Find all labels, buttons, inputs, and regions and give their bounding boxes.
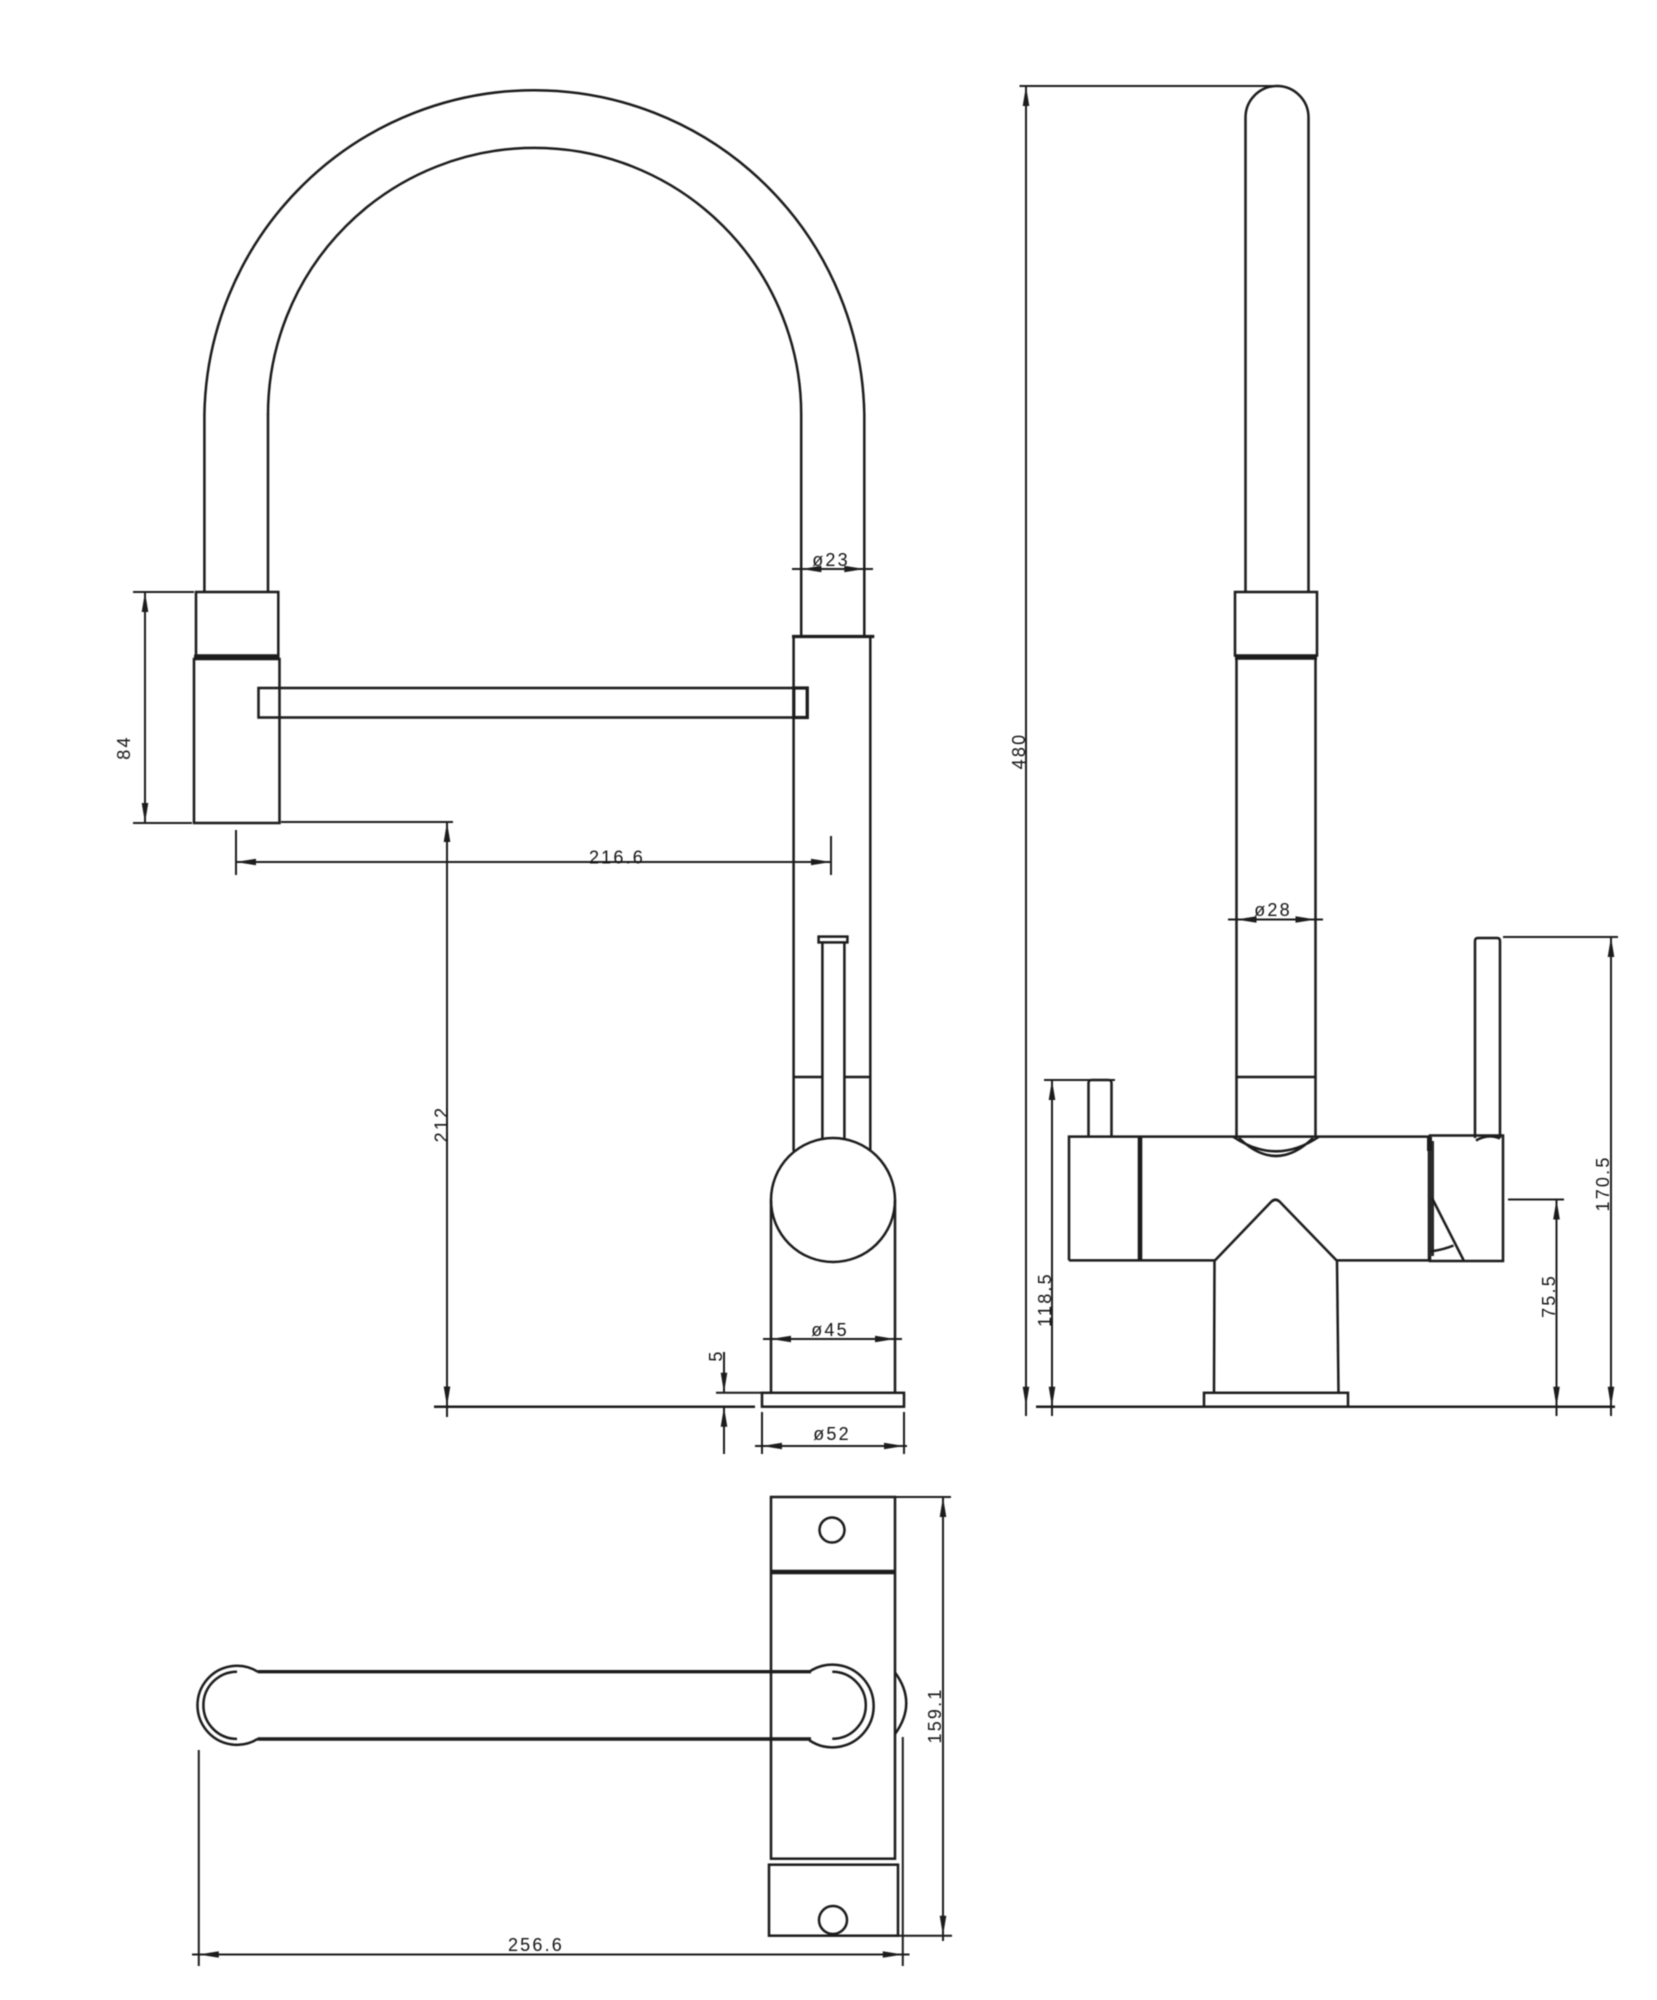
svg-text:118.5: 118.5 [1035, 1272, 1055, 1327]
svg-text:216.6: 216.6 [589, 848, 645, 868]
svg-text:170.5: 170.5 [1593, 1155, 1613, 1211]
svg-text:ø45: ø45 [811, 1320, 849, 1340]
svg-text:159.1: 159.1 [925, 1687, 945, 1743]
svg-text:480: 480 [1009, 733, 1029, 770]
svg-text:ø52: ø52 [813, 1424, 851, 1444]
svg-text:256.6: 256.6 [508, 1935, 564, 1955]
svg-text:5: 5 [706, 1349, 726, 1361]
svg-text:ø23: ø23 [812, 550, 850, 570]
svg-text:ø28: ø28 [1254, 900, 1292, 920]
svg-text:212: 212 [432, 1106, 452, 1143]
svg-text:75.5: 75.5 [1539, 1274, 1559, 1318]
svg-text:84: 84 [114, 735, 134, 759]
